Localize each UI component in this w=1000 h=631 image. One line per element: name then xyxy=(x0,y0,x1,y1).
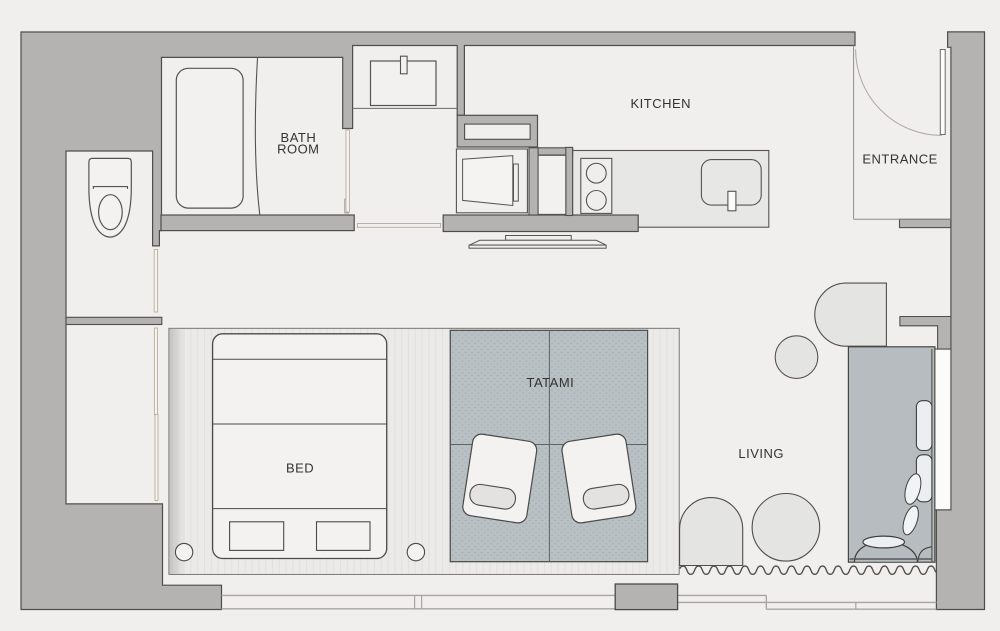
svg-text:LIVING: LIVING xyxy=(738,446,784,461)
svg-text:ROOM: ROOM xyxy=(277,142,319,157)
svg-text:ENTRANCE: ENTRANCE xyxy=(862,152,938,167)
svg-text:TATAMI: TATAMI xyxy=(527,375,575,390)
svg-text:KITCHEN: KITCHEN xyxy=(631,96,692,111)
svg-text:BED: BED xyxy=(286,461,314,476)
